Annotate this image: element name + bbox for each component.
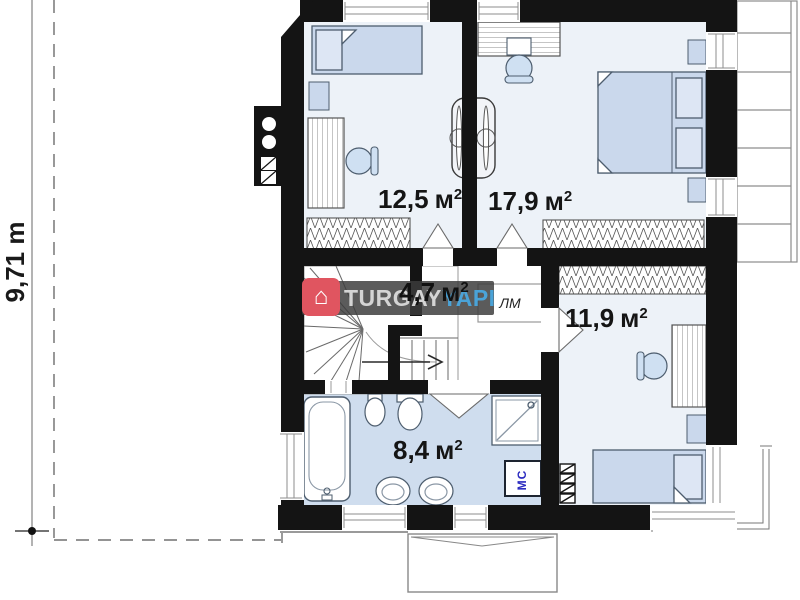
shower: [492, 396, 542, 445]
window-top-left: [343, 0, 430, 22]
window-right-upper: [706, 32, 737, 70]
window-right-lower: [706, 177, 737, 217]
washing-machine-label: МС: [515, 470, 529, 491]
chair: [641, 353, 667, 379]
dimension-label: 9,71 m: [0, 222, 30, 303]
wall-partition-bedrooms: [462, 0, 477, 266]
nightstand: [688, 178, 706, 202]
window-bottom-middle: [453, 505, 488, 530]
wall-stair-stub: [388, 325, 422, 336]
rug: [309, 82, 329, 110]
window-corner-bottom: [650, 505, 737, 530]
radiator: [560, 464, 575, 503]
property-dashed-line: [54, 0, 281, 540]
closet-label: ЛМ: [498, 295, 521, 311]
window-top-right: [477, 0, 520, 22]
wardrobe-top-right: [543, 220, 704, 250]
chimney: [254, 106, 283, 186]
window-bottom-left: [342, 505, 407, 530]
nightstand: [688, 40, 706, 64]
wall-right: [706, 18, 737, 445]
washing-machine: МС: [505, 461, 541, 496]
wardrobe-top-left: [307, 218, 410, 249]
dormer-roof-bottom: [408, 534, 557, 592]
room-label-bedroom-top-right: 17,9м2: [488, 186, 572, 216]
roof-edge-line: [280, 532, 408, 543]
window-corner-right: [706, 445, 737, 505]
bed-single-bottom: [593, 450, 706, 503]
bed-double: [598, 72, 706, 173]
sink: [376, 477, 410, 505]
nightstand: [687, 415, 707, 443]
wall-partition-hall: [541, 266, 559, 505]
house-icon: ⌂: [302, 278, 340, 316]
bathtub: [304, 397, 350, 501]
terrace-roof-right: [737, 1, 797, 262]
room-label-stair-hall: 4,7м2: [399, 277, 469, 308]
wardrobe-bottom: [559, 266, 706, 294]
floor-plan: 9,71 m: [0, 0, 800, 600]
chair: [346, 148, 372, 174]
room-label-bedroom-bottom: 11,9м2: [565, 303, 648, 333]
toilet: [397, 394, 423, 430]
bed-single-top-left: [312, 26, 422, 74]
sink: [419, 477, 453, 505]
dimension-line: 9,71 m: [0, 0, 49, 546]
window-left-bathroom: [278, 432, 304, 500]
room-label-bedroom-top-left: 12,5м2: [378, 184, 462, 214]
bidet: [365, 394, 385, 426]
room-label-bathroom: 8,4м2: [393, 435, 463, 465]
